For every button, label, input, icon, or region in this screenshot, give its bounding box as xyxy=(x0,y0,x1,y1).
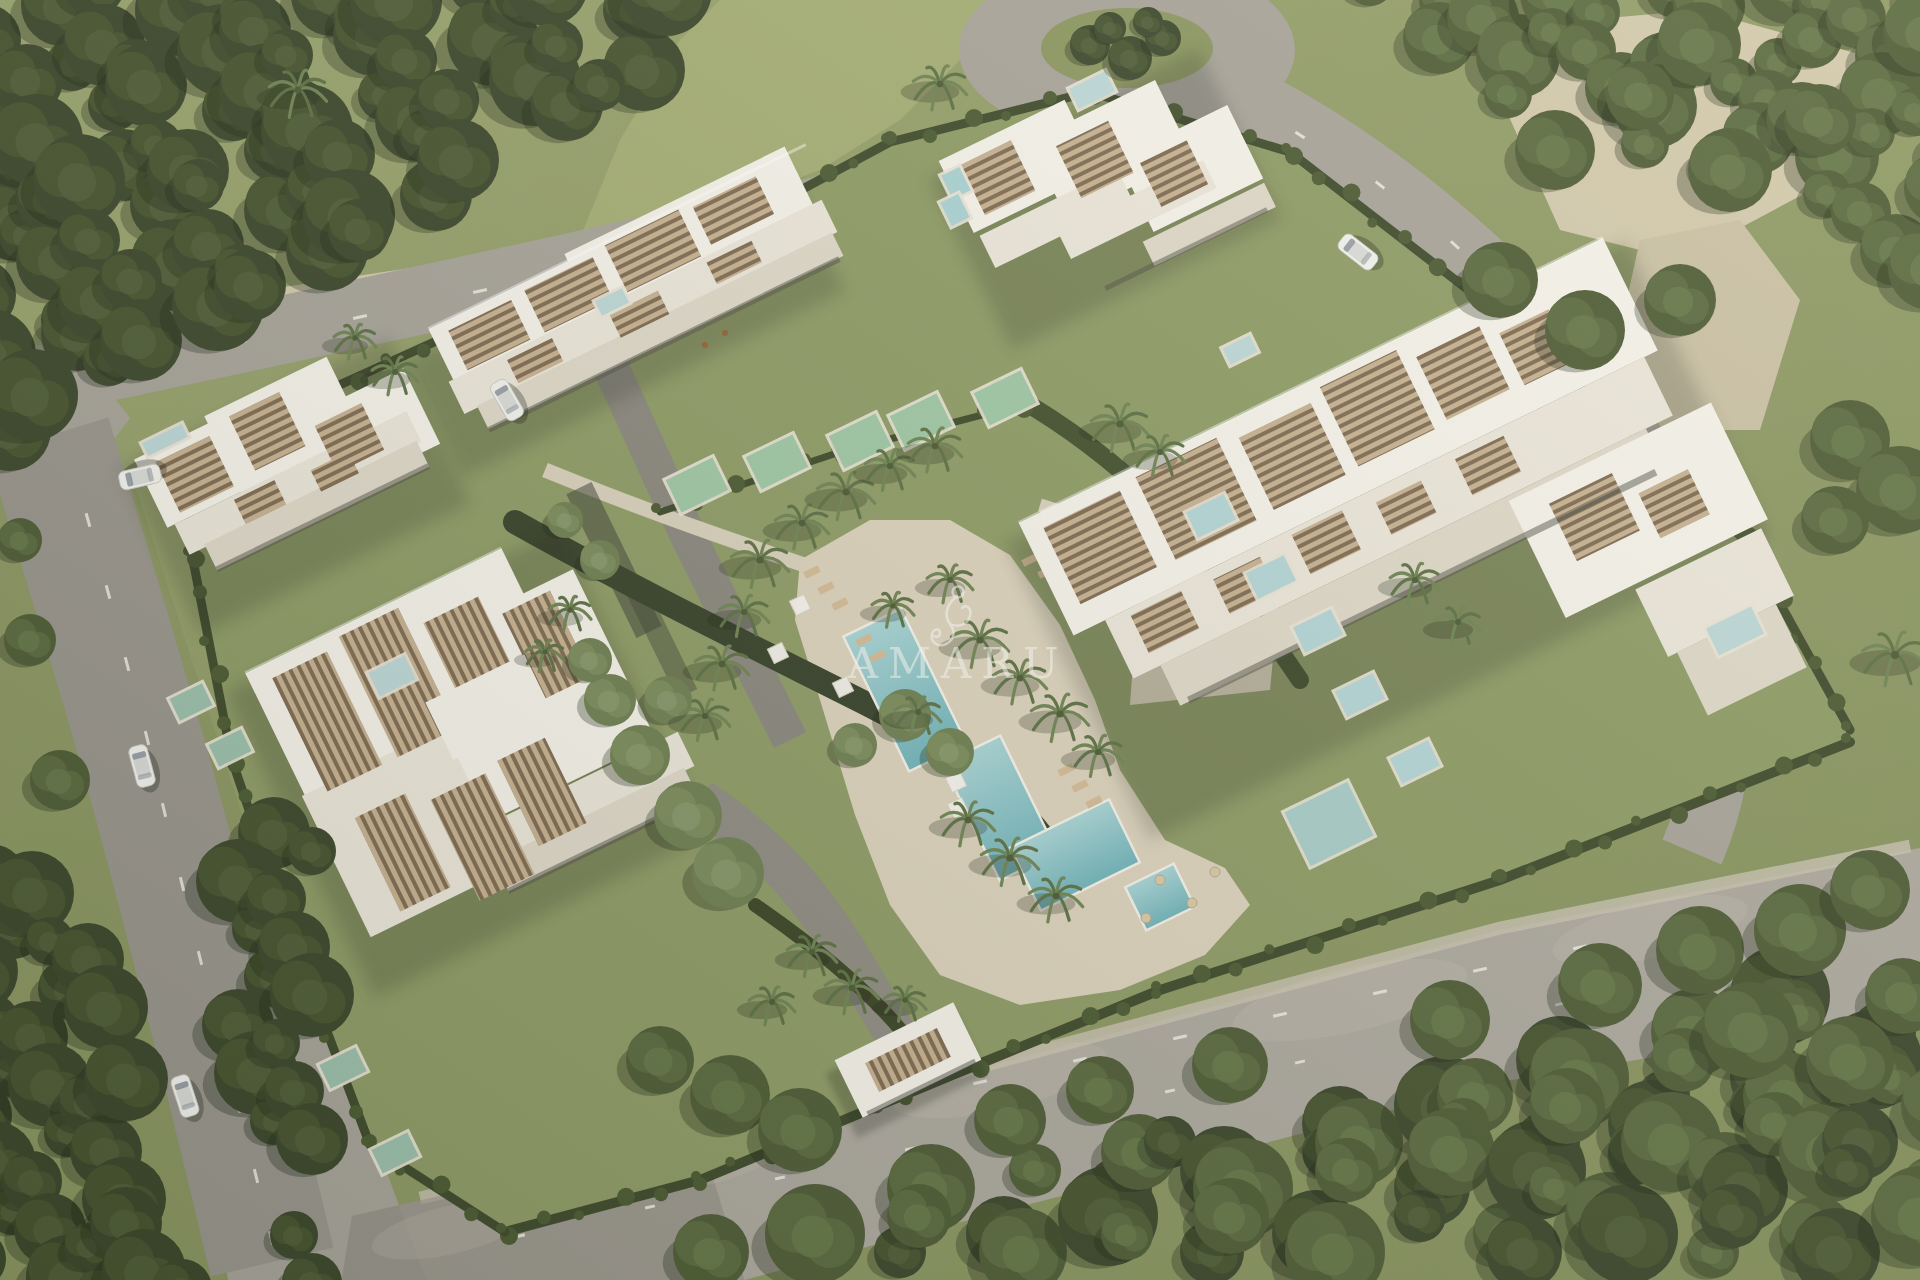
render-canvas: AMARU xyxy=(0,0,1920,1280)
aerial-site-render: AMARU xyxy=(0,0,1920,1280)
light-overlay xyxy=(0,0,1920,1280)
